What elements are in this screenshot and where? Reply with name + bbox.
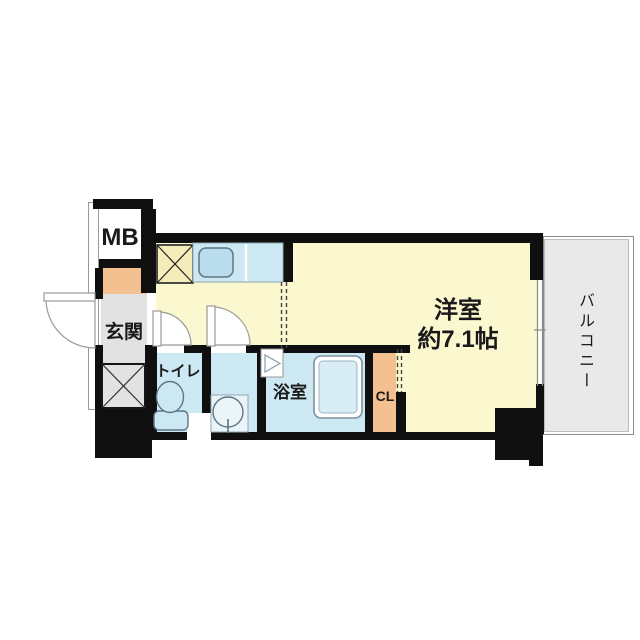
shoe-box-icon — [102, 364, 145, 408]
toilet-icon — [154, 382, 188, 431]
toilet-label: トイレ — [151, 360, 205, 381]
bath-door-icon — [261, 349, 283, 377]
bathroom-label: 浴室 — [262, 378, 318, 403]
entrance-label: 玄関 — [99, 317, 149, 344]
room-divider-dashed-line — [282, 282, 287, 348]
bathtub-icon — [314, 356, 362, 418]
closet-label: CL — [371, 388, 399, 404]
floor-plan: MB 玄関 トイレ 浴室 CL 洋室 約7.1帖 バルコニー — [0, 0, 640, 640]
closet-door-dashed-line — [398, 349, 402, 392]
sink-icon — [199, 248, 233, 277]
washbasin-icon — [211, 395, 248, 433]
entrance-door-swing — [44, 293, 95, 348]
fixtures-layer — [0, 0, 640, 640]
balcony-label: バルコニー — [572, 292, 596, 410]
washroom-door-swing — [207, 306, 250, 346]
meter-box-label: MB — [97, 224, 143, 252]
main-room-name: 洋室 — [374, 296, 542, 325]
main-room-label: 洋室 約7.1帖 — [374, 296, 542, 354]
kitchen-counter — [193, 243, 283, 282]
stove-icon — [157, 245, 193, 283]
toilet-door-swing — [153, 311, 191, 346]
main-room-size: 約7.1帖 — [374, 325, 542, 354]
